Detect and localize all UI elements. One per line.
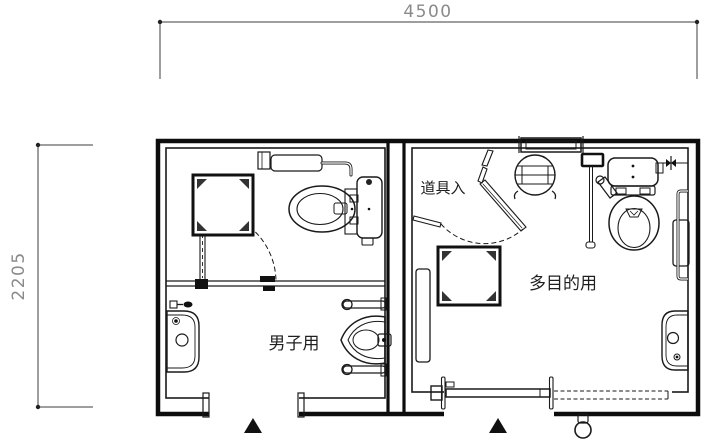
door-swing-arc [441, 224, 523, 244]
wall-control-box [582, 154, 603, 166]
vertical-grab-bar [586, 166, 595, 248]
floor-plan-drawing: 4500 2205 [0, 0, 712, 447]
room-mens: 男子用 [166, 152, 391, 433]
dimension-top: 4500 [158, 2, 699, 79]
dimension-left: 2205 [9, 143, 93, 409]
mens-toilet [289, 177, 382, 245]
multipurpose-room-label: 多目的用 [529, 274, 597, 294]
backrest-panel [673, 220, 689, 266]
dim-tick [36, 143, 40, 147]
floor-plan-canvas: 4500 2205 [0, 0, 712, 447]
mens-washbasin [167, 301, 199, 372]
door-latch-block [260, 276, 275, 282]
entrance-arrow-icon [489, 418, 507, 433]
door-operator-knob [575, 414, 591, 438]
water-valve-icon [662, 156, 688, 170]
dimension-height-label: 2205 [9, 251, 29, 300]
grab-bar [343, 301, 386, 308]
mens-room-label: 男子用 [269, 334, 320, 354]
toilet-cistern [608, 158, 658, 186]
multi-washbasin [662, 311, 688, 370]
faucet-icon [170, 301, 193, 308]
mens-urinal [341, 298, 391, 376]
door-pocket-block [431, 386, 442, 400]
transom-window [519, 136, 583, 153]
round-stool [514, 155, 555, 199]
mens-wall-shelf-grab-rail [258, 152, 351, 175]
dim-tick [158, 20, 162, 24]
mens-corner-box [193, 175, 253, 235]
dimension-width-label: 4500 [403, 2, 452, 22]
mirror-panel [416, 269, 430, 362]
toilet-cistern [357, 177, 382, 238]
multi-corner-box [438, 247, 500, 305]
door-latch-block [263, 286, 275, 291]
door-hinge-block [195, 279, 208, 289]
tool-entry-label: 道具入 [420, 179, 465, 197]
grab-bar [343, 366, 386, 373]
l-grab-bar [673, 191, 689, 279]
multi-toilet [596, 158, 663, 250]
dim-tick [695, 20, 699, 24]
dim-tick [36, 405, 40, 409]
entrance-arrow-icon [244, 418, 262, 433]
